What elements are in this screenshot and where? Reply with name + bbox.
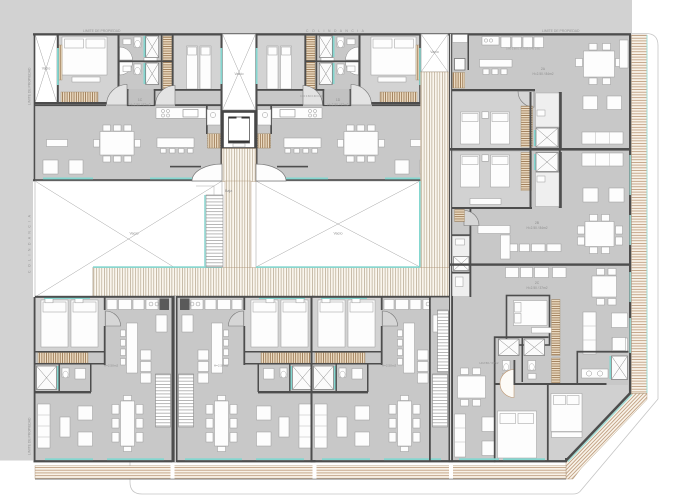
svg-text:2C: 2C [535,281,540,285]
svg-text:Vacío: Vacío [42,67,51,71]
svg-text:0.60 0.60 0.60 0.60: 0.60 0.60 0.60 0.60 [300,94,323,98]
svg-text:LIMITE DE PROPIEDAD: LIMITE DE PROPIEDAD [542,29,580,33]
svg-text:Vacío: Vacío [430,50,439,54]
svg-text:1D: 1D [336,98,341,102]
svg-text:C O L I N D A N C I A: C O L I N D A N C I A [306,29,365,33]
svg-text:Vacío: Vacío [334,232,343,236]
svg-text:H=2.50 / 37m2: H=2.50 / 37m2 [479,361,498,365]
svg-text:LIMITE DE PROPIEDAD: LIMITE DE PROPIEDAD [83,29,121,33]
svg-text:2B: 2B [535,221,540,225]
svg-text:Baja: Baja [225,189,232,193]
svg-text:H=2.50m2: H=2.50m2 [214,364,229,368]
svg-text:Vacío: Vacío [235,72,244,76]
svg-text:H=2.50 / 84m2: H=2.50 / 84m2 [527,226,548,230]
svg-text:LIMITE DE PROPIEDAD: LIMITE DE PROPIEDAD [28,417,32,455]
svg-text:H=2.50m2: H=2.50m2 [104,364,119,368]
svg-text:H=2.50m2: H=2.50m2 [382,364,397,368]
svg-text:0.60 0.60 0.75 0.60 0.45 0.60: 0.60 0.60 0.75 0.60 0.45 0.60 [506,47,540,51]
svg-text:H=2.50 / 97m2: H=2.50 / 97m2 [328,103,349,107]
svg-text:H=2.50 / 97m2: H=2.50 / 97m2 [130,103,151,107]
svg-text:LIMITE DE PROPIEDAD: LIMITE DE PROPIEDAD [28,67,32,105]
svg-text:2A: 2A [541,67,546,71]
svg-text:C O L I N D A N C I A: C O L I N D A N C I A [28,214,32,273]
svg-text:H=2.50 / 84m2: H=2.50 / 84m2 [533,72,554,76]
svg-text:H=2.50 / 37m2: H=2.50 / 37m2 [527,286,548,290]
svg-text:Vacío: Vacío [130,232,139,236]
svg-text:1C: 1C [138,98,143,102]
